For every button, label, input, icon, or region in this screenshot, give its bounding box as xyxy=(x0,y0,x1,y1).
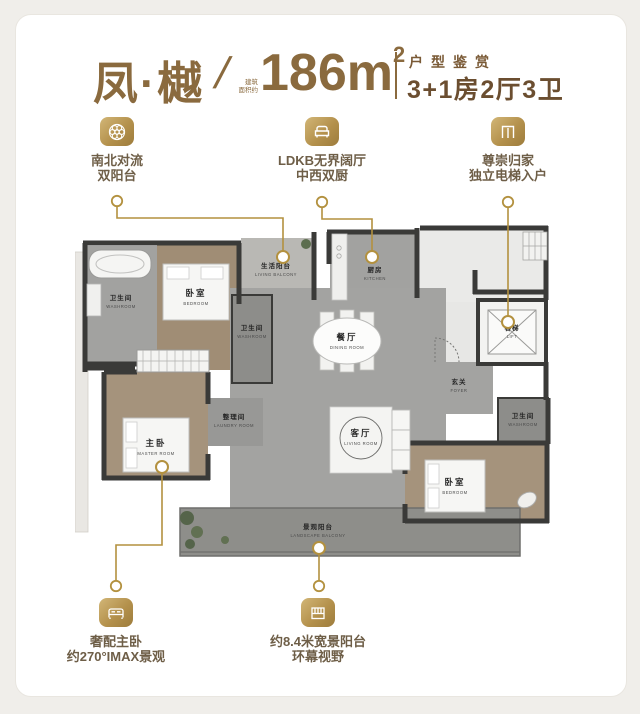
feature-line1: 奢配主卧 xyxy=(31,634,201,649)
room-label-laundry-en: LAUNDRY ROOM xyxy=(214,423,254,428)
room-label-living-cn: 客厅 xyxy=(349,428,371,438)
feature-master-view: 奢配主卧 约270°IMAX景观 xyxy=(31,598,201,664)
room-label-kitchen-cn: 厨房 xyxy=(368,265,383,274)
room-label-lift-en: LIFT xyxy=(507,334,518,339)
feature-ldkb-kitchen: LDKB无界阔厅 中西双厨 xyxy=(237,117,407,183)
room-label-foyer-cn: 玄关 xyxy=(452,377,467,386)
bed-icon xyxy=(99,598,133,627)
area-note-line1: 建筑 xyxy=(245,79,258,86)
sofa-icon xyxy=(305,117,339,146)
room-label-kitchen-en: KITCHEN xyxy=(364,276,386,281)
area-note: 建筑面积约 xyxy=(232,79,258,95)
feature-line2: 约270°IMAX景观 xyxy=(31,649,201,664)
room-label-living-balcony-en: LIVING BALCONY xyxy=(255,272,297,277)
project-name: 凤·樾 xyxy=(93,47,204,112)
room-label-bedroom2-cn: 卧室 xyxy=(444,477,465,487)
lift-shaft xyxy=(478,300,546,364)
room-label-living-balcony-cn: 生活阳台 xyxy=(261,261,291,270)
feature-wide-balcony: 约8.4米宽景阳台 环幕视野 xyxy=(233,598,403,664)
feature-line1: 约8.4米宽景阳台 xyxy=(233,634,403,649)
floor-plan: 卫生间 WASHROOM 卧室 BEDROOM 生活阳台 LIVING BALC… xyxy=(75,222,587,562)
feature-line1: 南北对流 xyxy=(32,153,202,168)
room-label-master-cn: 主卧 xyxy=(145,438,166,448)
feature-line1: 尊崇归家 xyxy=(423,153,593,168)
elevator-doors-icon xyxy=(491,117,525,146)
room-label-bath1-en: WASHROOM xyxy=(106,304,135,309)
room-label-bath3-en: WASHROOM xyxy=(508,422,537,427)
area-number: 186m xyxy=(260,44,393,102)
room-label-bath2-en: WASHROOM xyxy=(237,334,266,339)
header-divider xyxy=(395,52,397,99)
feature-north-south-balconies: 南北对流 双阳台 xyxy=(32,117,202,183)
layout-spec: 3+1房2厅3卫 xyxy=(407,70,564,106)
room-label-foyer-en: FOYER xyxy=(451,388,468,393)
series-label: 户型鉴赏 xyxy=(409,52,497,72)
room-label-bedroom2-en: BEDROOM xyxy=(442,490,467,495)
balcony-window-icon xyxy=(301,598,335,627)
room-label-laundry-cn: 整理间 xyxy=(223,412,246,421)
room-label-dining-en: DINING ROOM xyxy=(330,345,364,350)
feature-line2: 中西双厨 xyxy=(237,168,407,183)
feature-line2: 环幕视野 xyxy=(233,649,403,664)
feature-line1: LDKB无界阔厅 xyxy=(237,153,407,168)
feature-private-elevator: 尊崇归家 独立电梯入户 xyxy=(423,117,593,183)
room-label-balcony-en: LANDSCAPE BALCONY xyxy=(290,533,345,538)
room-label-bedroom1-en: BEDROOM xyxy=(183,301,208,306)
area-value: 186m2 xyxy=(260,42,405,103)
room-label-master-en: MASTER ROOM xyxy=(137,451,174,456)
room-label-bedroom1-cn: 卧室 xyxy=(185,288,206,298)
room-label-dining-cn: 餐厅 xyxy=(335,332,357,342)
rosette-icon xyxy=(100,117,134,146)
room-label-bath1-cn: 卫生间 xyxy=(110,293,133,302)
room-label-lift-cn: 客梯 xyxy=(504,323,520,332)
feature-line2: 独立电梯入户 xyxy=(423,168,593,183)
room-label-bath2-cn: 卫生间 xyxy=(241,323,264,332)
room-label-living-en: LIVING ROOM xyxy=(344,441,377,446)
room-label-balcony-cn: 景观阳台 xyxy=(303,522,333,531)
room-label-bath3-cn: 卫生间 xyxy=(512,411,535,420)
feature-line2: 双阳台 xyxy=(32,168,202,183)
area-note-line2: 面积约 xyxy=(239,87,259,94)
